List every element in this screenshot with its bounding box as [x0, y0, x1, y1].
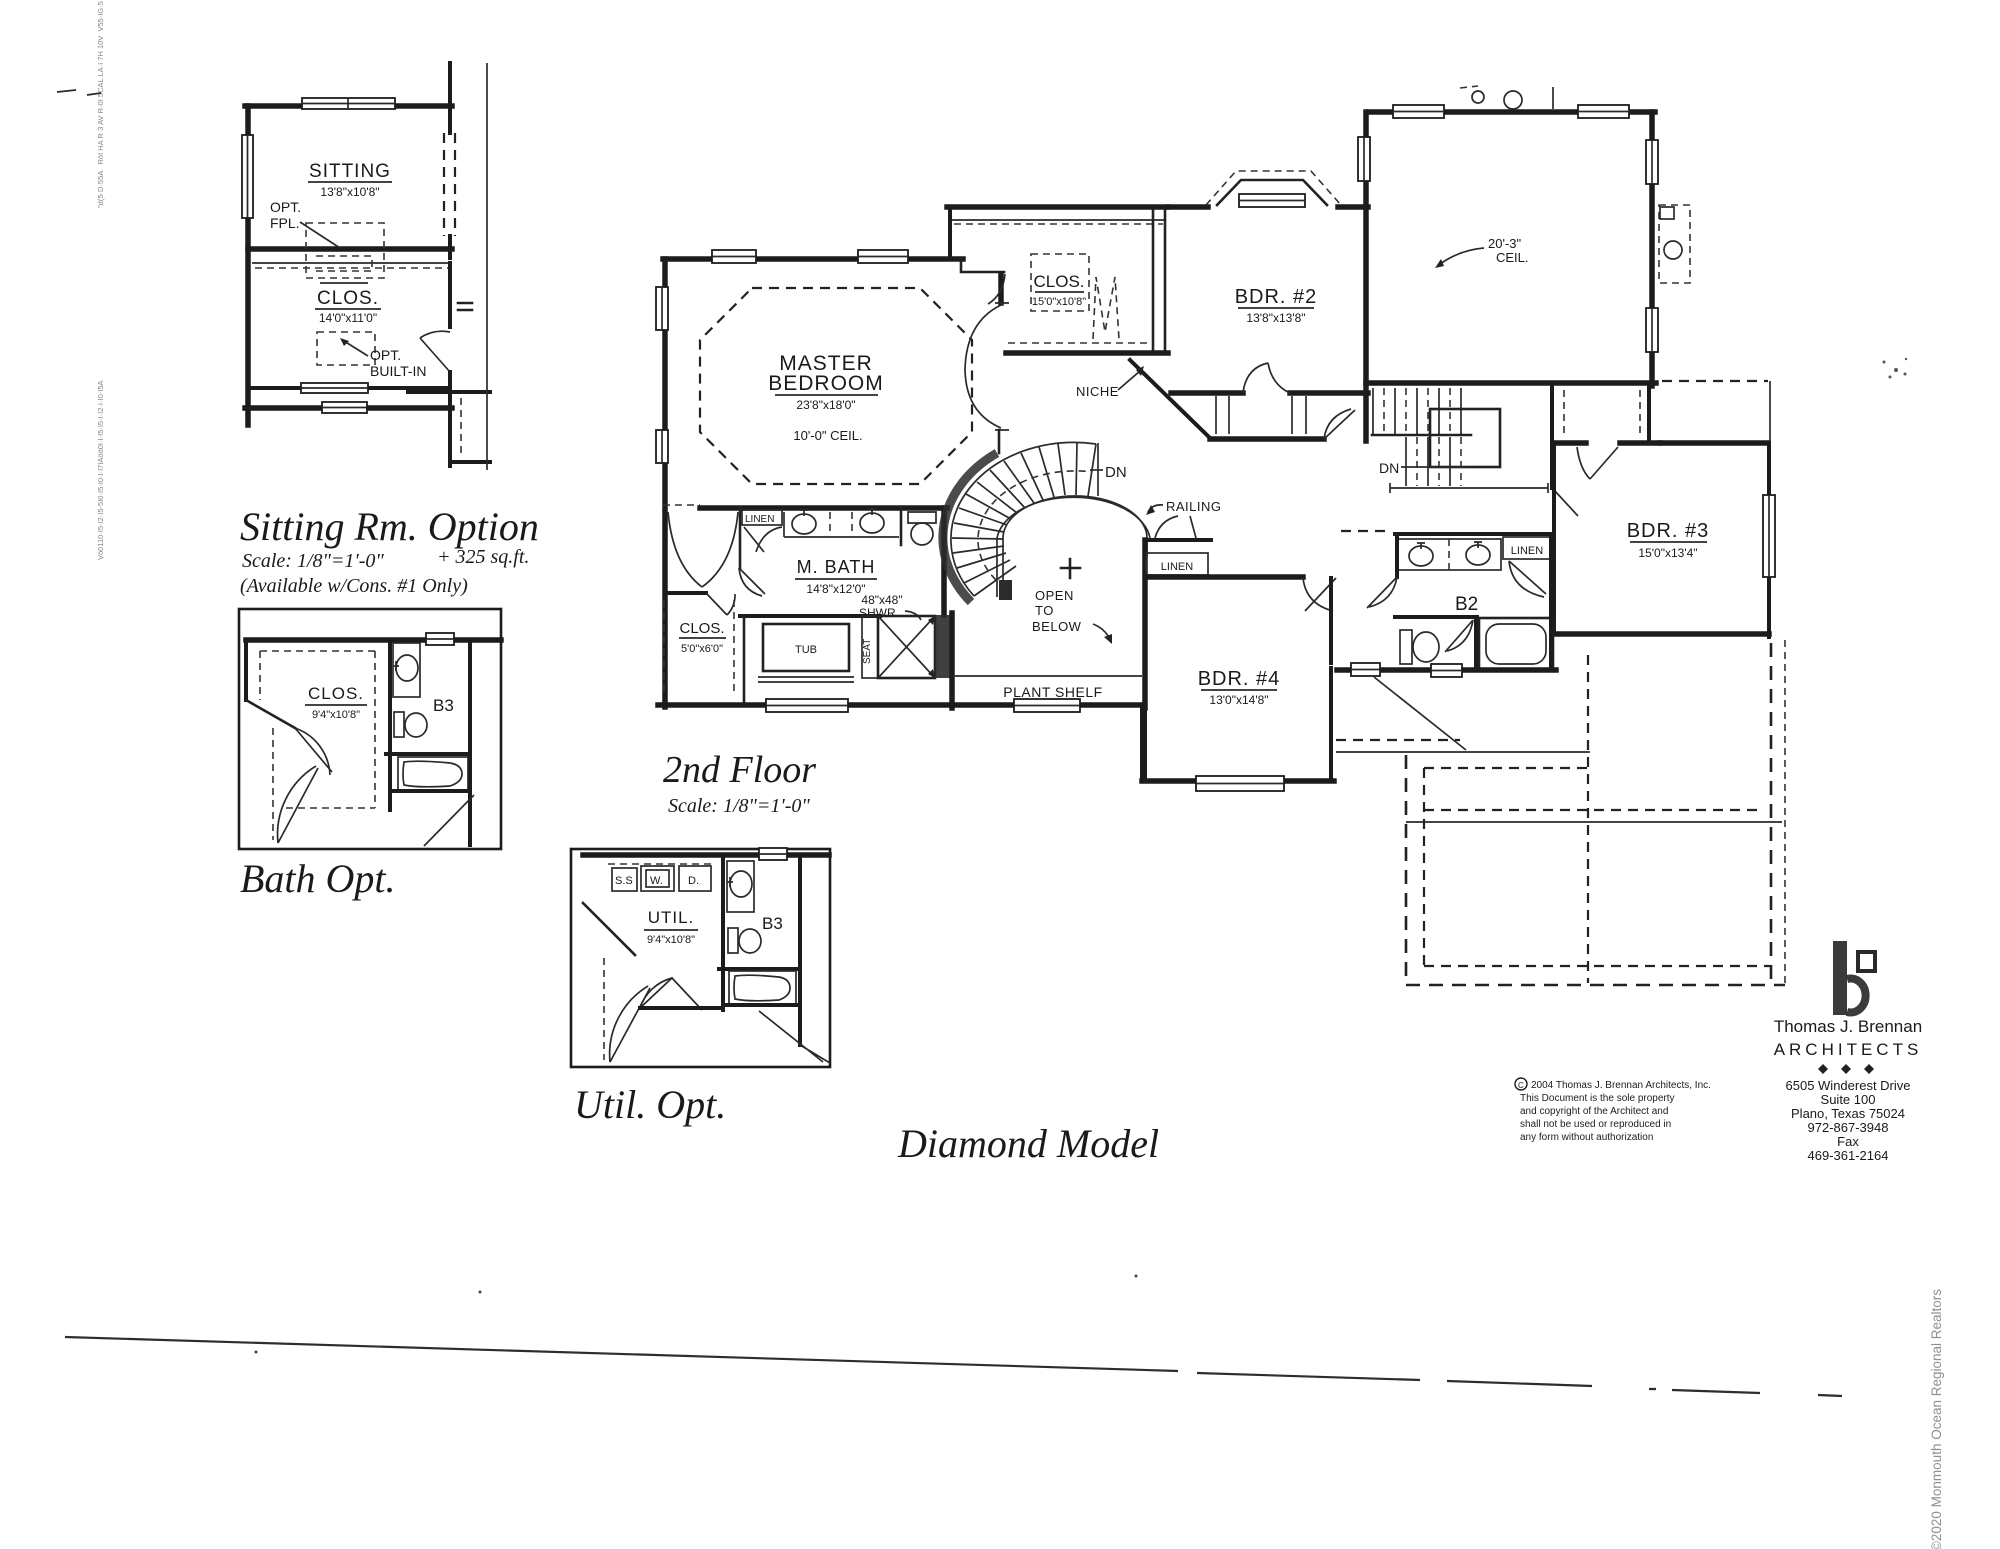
svg-text:shall not be used or reproduce: shall not be used or reproduced in: [1520, 1119, 1671, 1130]
svg-text:CEIL.: CEIL.: [1496, 250, 1529, 265]
svg-text:10'-0" CEIL.: 10'-0" CEIL.: [793, 428, 862, 443]
svg-text:DN: DN: [1105, 464, 1127, 481]
svg-text:Vö0110·I5·I2·I5-5I0·I5·I0·I·I7: Vö0110·I5·I2·I5-5I0·I5·I0·I·I7IAöö0I·I·I…: [96, 380, 105, 560]
svg-text:2nd Floor: 2nd Floor: [663, 749, 816, 791]
svg-text:ARCHITECTS: ARCHITECTS: [1774, 1040, 1923, 1059]
svg-text:BUILT-IN: BUILT-IN: [370, 363, 427, 379]
svg-text:SITTING: SITTING: [309, 161, 391, 182]
svg-text:9'4"x10'8": 9'4"x10'8": [647, 934, 695, 946]
svg-text:TO: TO: [1035, 603, 1054, 618]
svg-text:OPT.: OPT.: [370, 347, 401, 363]
svg-text:and copyright of the Architect: and copyright of the Architect and: [1520, 1106, 1668, 1117]
svg-text:LINEN: LINEN: [1161, 561, 1193, 573]
svg-text:LINEN: LINEN: [1511, 545, 1543, 557]
svg-text:D.: D.: [688, 875, 699, 887]
svg-text:NICHE: NICHE: [1076, 384, 1119, 399]
svg-text:FPL.: FPL.: [270, 215, 300, 231]
svg-text:BELOW: BELOW: [1032, 619, 1082, 634]
svg-text:BEDROOM: BEDROOM: [768, 372, 884, 395]
svg-text:48"x48": 48"x48": [861, 593, 902, 607]
svg-text:This Document is the sole prop: This Document is the sole property: [1520, 1093, 1675, 1104]
svg-text:BDR. #3: BDR. #3: [1627, 520, 1710, 542]
svg-text:DN: DN: [1379, 460, 1399, 476]
svg-text:14'8"x12'0": 14'8"x12'0": [806, 582, 865, 596]
svg-text:5'0"x6'0": 5'0"x6'0": [681, 643, 723, 655]
svg-text:20'-3": 20'-3": [1488, 236, 1522, 251]
svg-text:Util. Opt.: Util. Opt.: [574, 1082, 726, 1127]
svg-text:15'0"x13'4": 15'0"x13'4": [1638, 546, 1697, 560]
svg-text:Fax: Fax: [1837, 1134, 1859, 1149]
svg-text:+ 325 sq.ft.: + 325 sq.ft.: [437, 546, 529, 568]
svg-text:972-867-3948: 972-867-3948: [1808, 1120, 1889, 1135]
svg-text:Bath Opt.: Bath Opt.: [240, 856, 396, 901]
svg-text:RAILING: RAILING: [1166, 499, 1222, 514]
svg-text:6505 Winderest Drive: 6505 Winderest Drive: [1786, 1078, 1911, 1093]
svg-text:C: C: [1518, 1081, 1524, 1090]
svg-text:2004 Thomas J. Brennan Archite: 2004 Thomas J. Brennan Architects, Inc.: [1531, 1080, 1711, 1091]
svg-text:PLANT SHELF: PLANT SHELF: [1003, 684, 1102, 700]
svg-text:M. BATH: M. BATH: [797, 557, 876, 577]
svg-text:CLOS.: CLOS.: [317, 288, 379, 309]
svg-text:Sitting Rm. Option: Sitting Rm. Option: [240, 504, 539, 549]
svg-text:W.: W.: [650, 875, 663, 887]
svg-text:13'0"x14'8": 13'0"x14'8": [1209, 693, 1268, 707]
svg-text:Diamond Model: Diamond Model: [897, 1121, 1159, 1166]
svg-text:Thomas J. Brennan: Thomas J. Brennan: [1774, 1017, 1922, 1036]
svg-text:B3: B3: [433, 696, 454, 715]
svg-text:B2: B2: [1455, 594, 1478, 615]
svg-text:CLOS.: CLOS.: [1033, 272, 1084, 291]
svg-text:UTIL.: UTIL.: [648, 908, 695, 927]
svg-text:OPT.: OPT.: [270, 199, 301, 215]
svg-text:13'8"x10'8": 13'8"x10'8": [320, 185, 379, 199]
svg-text:SEAT: SEAT: [862, 639, 873, 664]
svg-text:B3: B3: [762, 914, 783, 933]
svg-text:any form without authorization: any form without authorization: [1520, 1132, 1653, 1143]
svg-text:CLOS.: CLOS.: [679, 620, 724, 637]
svg-text:Suite 100: Suite 100: [1821, 1092, 1876, 1107]
svg-text:Plano, Texas 75024: Plano, Texas 75024: [1791, 1106, 1905, 1121]
svg-text:Scale: 1/8"=1'-0": Scale: 1/8"=1'-0": [242, 550, 384, 572]
svg-text:BDR. #4: BDR. #4: [1198, 668, 1281, 690]
svg-text:©2020 Monmouth Ocean Regional: ©2020 Monmouth Ocean Regional Realtors: [1929, 1289, 1944, 1549]
svg-text:LINEN: LINEN: [745, 514, 774, 525]
svg-text:Scale: 1/8"=1'-0": Scale: 1/8"=1'-0": [668, 795, 810, 817]
svg-text:(Available w/Cons. #1 Only): (Available w/Cons. #1 Only): [240, 575, 468, 597]
svg-text:TUB: TUB: [795, 644, 817, 656]
svg-text:CLOS.: CLOS.: [308, 684, 364, 703]
svg-text:14'0"x11'0": 14'0"x11'0": [319, 311, 377, 325]
svg-text:469-361-2164: 469-361-2164: [1808, 1148, 1889, 1163]
svg-text:23'8"x18'0": 23'8"x18'0": [796, 398, 855, 412]
svg-text:OPEN: OPEN: [1035, 588, 1074, 603]
svg-text:15'0"x10'8": 15'0"x10'8": [1032, 296, 1086, 308]
svg-text:BDR. #2: BDR. #2: [1235, 286, 1318, 308]
svg-text:"d(5·D·55A RöI HA R·3 AV R·0: "d(5·D·55A RöI HA R·3 AV R·0I 5CAL LA·I …: [96, 0, 105, 208]
svg-text:13'8"x13'8": 13'8"x13'8": [1246, 311, 1305, 325]
svg-text:S.S: S.S: [615, 875, 633, 887]
svg-text:9'4"x10'8": 9'4"x10'8": [312, 709, 360, 721]
